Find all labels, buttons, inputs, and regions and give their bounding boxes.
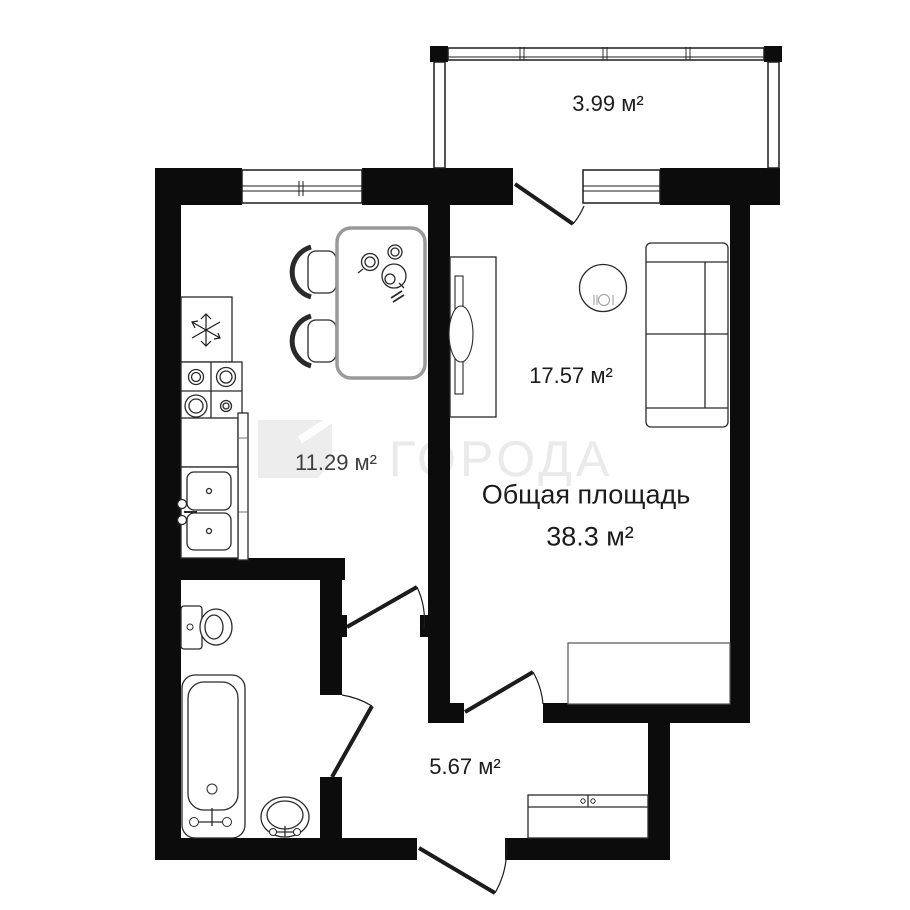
kitchen-door — [347, 587, 424, 629]
kitchen-sink-icon — [178, 467, 239, 558]
total-area-title: Общая площадь — [482, 480, 691, 511]
wall-kitchen-bottom — [155, 558, 345, 580]
entrance-door — [419, 840, 507, 893]
round-table-icon — [580, 265, 627, 312]
bathtub-icon — [182, 675, 245, 838]
wall-bottom-right — [505, 838, 670, 860]
kitchen-furniture — [178, 228, 426, 560]
wall-bath-right-lower — [320, 777, 342, 860]
wall-right — [730, 205, 750, 723]
wall-bottom-left — [155, 838, 417, 860]
wardrobe-icon — [528, 795, 648, 838]
toilet-icon — [181, 606, 232, 649]
wall-top-c — [660, 168, 780, 205]
living-door — [465, 672, 543, 712]
balcony-area-label: 3.99 м² — [572, 91, 643, 117]
wall-divider-foot — [450, 703, 464, 723]
wall-kitchen-door-jamb-left — [340, 615, 347, 637]
balcony-corner-block-right — [764, 46, 782, 62]
walls — [155, 46, 782, 860]
hallway-area-label: 5.67 м² — [429, 754, 500, 780]
wall-left — [155, 168, 181, 860]
kitchen-window — [242, 170, 362, 203]
bathroom-door — [332, 695, 372, 777]
balcony-corner-block-left — [430, 46, 448, 62]
dining-chair-icon — [292, 316, 336, 366]
wall-bath-right-upper — [320, 580, 342, 695]
balcony-door — [515, 184, 584, 224]
living-furniture — [449, 243, 730, 704]
balcony-glazing-right — [768, 62, 779, 168]
wall-living-bottom — [543, 703, 750, 723]
living-area-label: 17.57 м² — [529, 363, 613, 389]
bed-icon — [568, 643, 730, 704]
stove-icon — [181, 362, 242, 420]
tv-stand-icon — [449, 257, 496, 417]
total-area-value: 38.3 м² — [546, 522, 634, 553]
dining-chair-icon — [292, 247, 336, 297]
floor-plan: ГОРОДА — [0, 0, 910, 910]
bathroom-fixtures — [181, 606, 309, 838]
balcony-glazing-top — [448, 48, 764, 60]
living-window — [583, 170, 660, 203]
balcony-glazing-left — [434, 62, 445, 168]
wall-divider — [428, 168, 450, 723]
fridge-icon — [181, 297, 232, 362]
sofa-icon — [646, 243, 728, 427]
wall-top-a — [155, 168, 242, 205]
dining-table-icon — [337, 228, 425, 378]
washbasin-icon — [261, 797, 309, 837]
kitchen-area-label: 11.29 м² — [295, 450, 377, 476]
